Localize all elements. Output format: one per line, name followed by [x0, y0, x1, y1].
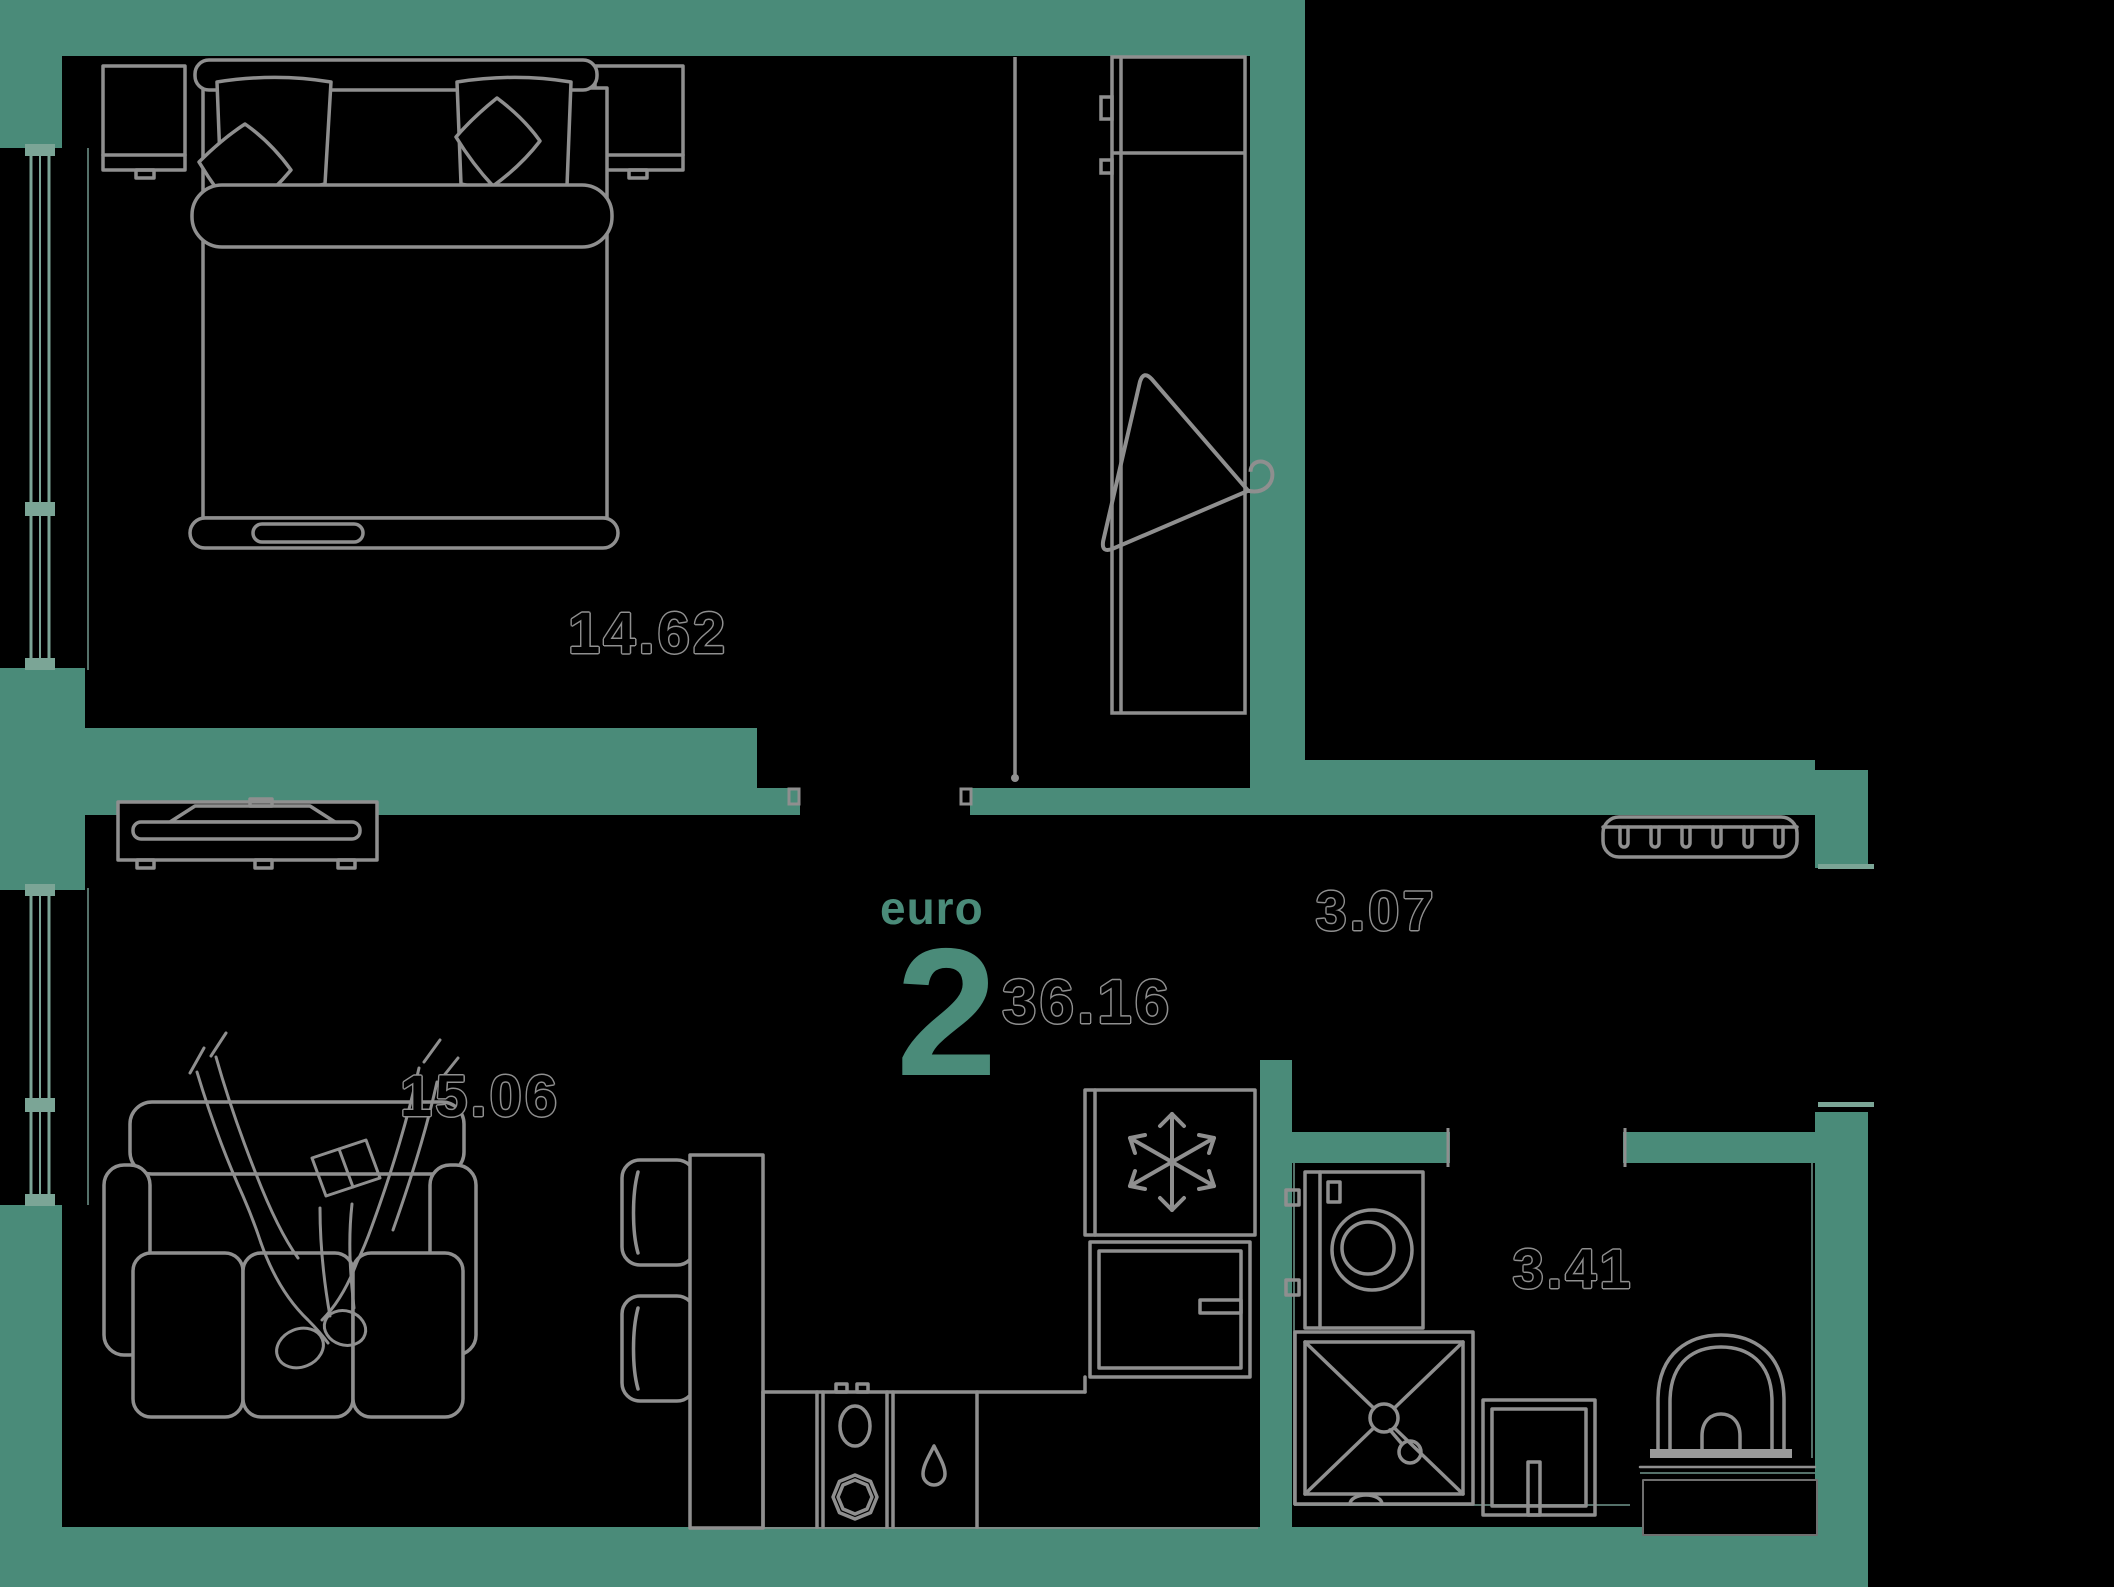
wall-left-mid — [0, 668, 85, 890]
bathroom-vanity-icon — [1643, 1480, 1817, 1535]
dining-chair-icon — [622, 1160, 695, 1265]
wall-left-low — [0, 1205, 62, 1587]
double-bed-icon — [190, 60, 618, 548]
bathroom-furniture — [1286, 1172, 1817, 1535]
shower-icon — [1295, 1332, 1473, 1504]
living-window-icon — [25, 884, 55, 1206]
wall-bathroom-left — [1260, 1060, 1292, 1587]
fridge-icon — [1085, 1090, 1255, 1235]
living-area-label: 15.06 — [400, 1063, 560, 1130]
hallway-window-icon — [1818, 864, 1874, 1107]
wall-bedroom-tab — [757, 788, 800, 815]
gas-point-drop-icon — [923, 1446, 945, 1485]
wall-left-top — [0, 0, 62, 148]
bedroom-window-icon — [25, 144, 55, 670]
kitchen-counter — [763, 1377, 1085, 1527]
wall-under-wardrobe — [970, 788, 1250, 815]
wall-right-bottom — [1815, 1112, 1868, 1587]
kitchen-furniture — [622, 1090, 1255, 1528]
floorplan-canvas: 14.62 15.06 3.07 3.41 euro 2 36.16 — [0, 0, 2114, 1587]
wardrobe-cabinet-icon — [1101, 57, 1245, 713]
wall-bathroom-top-right — [1623, 1132, 1815, 1163]
nightstand-left-icon — [103, 66, 185, 178]
wall-top-band — [0, 0, 1305, 56]
bedroom-furniture — [103, 60, 683, 548]
wall-bottom-band — [0, 1527, 1868, 1587]
wall-hallway-top — [1250, 760, 1815, 815]
bathroom-cabinet-icon — [1483, 1400, 1595, 1515]
wall-corner-strip — [1250, 0, 1305, 815]
kitchen-cabinet-icon — [1090, 1242, 1250, 1377]
wardrobe — [1011, 57, 1288, 782]
bedroom-door-jamb-right — [961, 789, 971, 804]
rooms-count-label: 2 — [896, 921, 997, 1103]
kitchen-sink-icon — [833, 1384, 877, 1519]
freezer-snowflake-icon — [1130, 1114, 1214, 1210]
bedroom-area-label: 14.62 — [568, 600, 728, 667]
hallway-area-label: 3.07 — [1316, 878, 1437, 943]
total-area-label: 36.16 — [1002, 967, 1172, 1038]
tv-console-icon — [118, 799, 377, 868]
bathroom-area-label: 3.41 — [1513, 1236, 1634, 1301]
dining-table-icon — [690, 1155, 763, 1528]
wall-bathroom-top-left — [1292, 1132, 1450, 1163]
floorplan-drawing — [0, 0, 2114, 1587]
plan-summary: euro 2 36.16 — [880, 885, 1180, 931]
wall-right-top — [1815, 770, 1868, 868]
dining-chair-icon — [622, 1296, 695, 1401]
radiator-shelf-icon — [1603, 817, 1797, 857]
washing-machine-icon — [1286, 1172, 1423, 1328]
toilet-icon — [1640, 1335, 1815, 1467]
hallway-items — [1603, 817, 1797, 857]
